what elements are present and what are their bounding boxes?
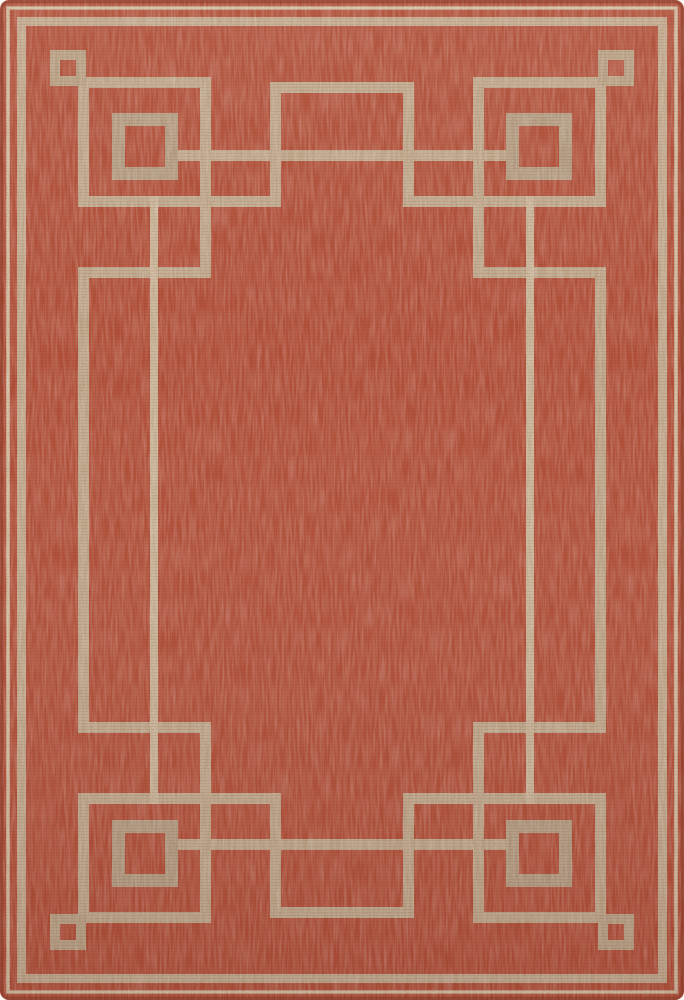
rug-product-photo (0, 0, 684, 1000)
rug-image (0, 0, 684, 1000)
